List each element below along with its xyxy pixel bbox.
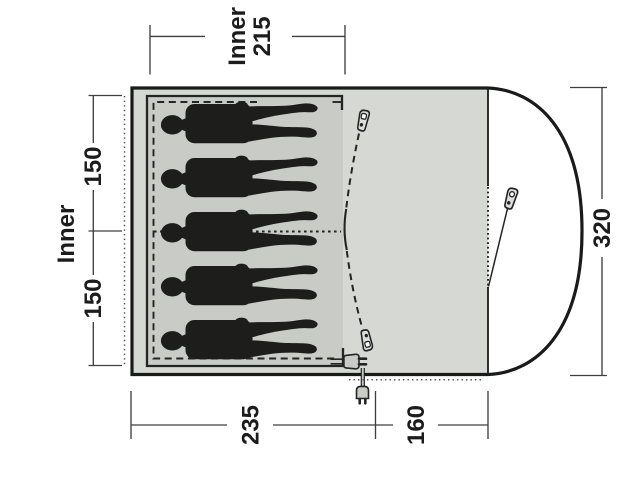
svg-text:Inner: Inner (224, 7, 251, 66)
svg-text:235: 235 (238, 405, 265, 445)
svg-text:160: 160 (403, 405, 430, 445)
svg-text:150: 150 (80, 278, 107, 318)
svg-text:150: 150 (80, 146, 107, 186)
svg-text:215: 215 (249, 16, 276, 56)
svg-text:320: 320 (589, 208, 616, 248)
svg-text:Inner: Inner (53, 205, 80, 264)
